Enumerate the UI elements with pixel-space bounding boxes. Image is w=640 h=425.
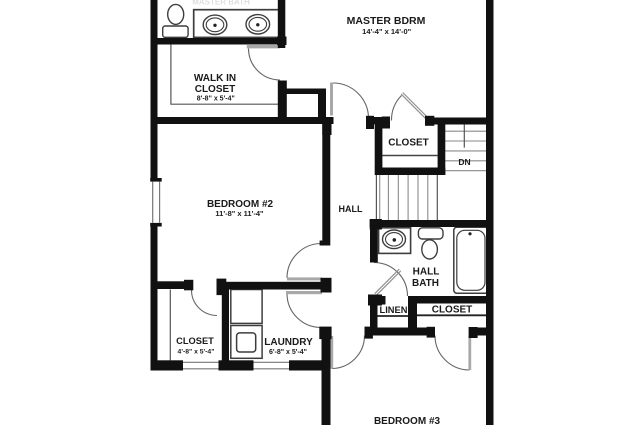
svg-text:CLOSET: CLOSET <box>176 336 214 346</box>
svg-text:MASTER BDRM: MASTER BDRM <box>347 15 426 27</box>
svg-text:MASTER BATH: MASTER BATH <box>192 0 250 7</box>
svg-text:11'-8" x 11'-4": 11'-8" x 11'-4" <box>215 209 264 218</box>
svg-text:LINEN: LINEN <box>380 305 408 315</box>
svg-text:HALL: HALL <box>413 267 440 278</box>
svg-text:WALK IN: WALK IN <box>194 73 236 84</box>
svg-text:CLOSET: CLOSET <box>432 305 473 316</box>
svg-text:DN: DN <box>458 157 470 167</box>
svg-text:CLOSET: CLOSET <box>388 138 429 149</box>
svg-text:8'-8" x 5'-4": 8'-8" x 5'-4" <box>197 95 235 102</box>
svg-text:14'-4" x 14'-0": 14'-4" x 14'-0" <box>362 27 411 36</box>
svg-text:BATH: BATH <box>412 278 439 289</box>
svg-text:BEDROOM #3: BEDROOM #3 <box>374 416 441 425</box>
svg-text:6'-8" x 5'-4": 6'-8" x 5'-4" <box>269 349 307 356</box>
svg-text:4'-8" x 5'-4": 4'-8" x 5'-4" <box>178 348 215 355</box>
svg-text:CLOSET: CLOSET <box>195 84 236 95</box>
svg-text:HALL: HALL <box>339 204 363 214</box>
svg-text:LAUNDRY: LAUNDRY <box>264 337 313 348</box>
